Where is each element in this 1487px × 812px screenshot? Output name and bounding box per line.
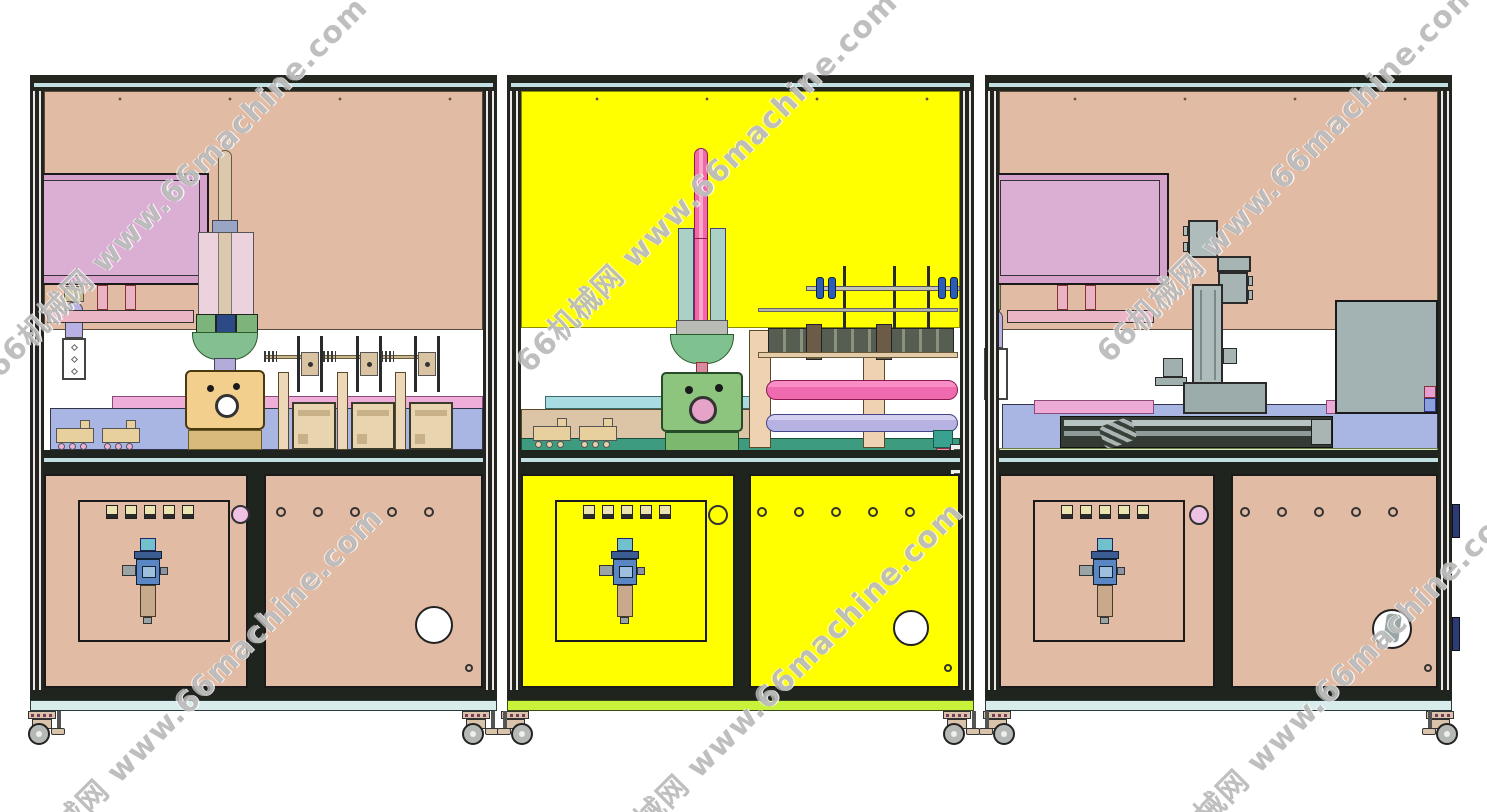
- vent-hole: [1314, 507, 1324, 517]
- robot-bracket-tab: [1248, 290, 1253, 300]
- left-mid-divider: [30, 450, 497, 470]
- terminal-connector: [602, 505, 614, 519]
- middle-press-drum: [670, 334, 734, 364]
- air-filter-regulator: [597, 538, 653, 626]
- valve-body: [56, 428, 94, 443]
- terminal-connector: [1118, 505, 1130, 519]
- monitor-stand-column: [1057, 285, 1068, 310]
- door-hinge: [1452, 504, 1460, 538]
- filter-cap: [1097, 538, 1113, 551]
- caster-wheel: [943, 723, 965, 745]
- leveling-pad: [497, 728, 511, 735]
- left-monitor: [33, 173, 209, 323]
- vent-hole: [868, 507, 878, 517]
- robot-motor: [1163, 358, 1183, 377]
- caster-bolts: [465, 714, 487, 717]
- terminal-connector: [621, 505, 633, 519]
- caster: [1424, 711, 1466, 747]
- vent-hole: [794, 507, 804, 517]
- vent-hole: [424, 507, 434, 517]
- column-groove: [1200, 290, 1202, 380]
- press-block-green: [236, 314, 258, 334]
- right-table-trim: [1034, 400, 1154, 414]
- terminal-connector: [106, 505, 118, 519]
- small-hole: [944, 664, 952, 672]
- right-kick-strip: [985, 700, 1452, 711]
- press-body-rod: [218, 233, 232, 315]
- gearbox-bar: [415, 410, 447, 416]
- press-box-eye: [715, 384, 723, 392]
- spool-flange: [356, 336, 359, 392]
- left-bottom-rail: [30, 690, 497, 700]
- monitor-screen: [1000, 180, 1160, 276]
- valve-foot: [104, 443, 111, 450]
- cable-gland-hole: [415, 606, 453, 644]
- vent-hole: [276, 507, 286, 517]
- gearbox-block: [415, 434, 425, 444]
- leveling-stem: [985, 711, 989, 729]
- press-block-green: [196, 314, 216, 334]
- linear-rail: [1060, 416, 1333, 448]
- valve-foot: [69, 443, 76, 450]
- valve-foot: [58, 443, 65, 450]
- press-box-port: [689, 396, 717, 424]
- leveling-stem: [972, 711, 976, 729]
- filter-knob: [1079, 565, 1093, 576]
- caster-wheel: [511, 723, 533, 745]
- terminal-connector: [182, 505, 194, 519]
- caster-wheel: [993, 723, 1015, 745]
- leveling-pad: [979, 728, 993, 735]
- filter-drain: [143, 617, 152, 624]
- shaft-flange: [816, 277, 824, 299]
- middle-press-rod-lower: [694, 238, 708, 330]
- terminal-connector: [1080, 505, 1092, 519]
- top-bar-stripe: [511, 83, 970, 87]
- left-indicator-button: [231, 505, 250, 524]
- caster-plate: [943, 711, 971, 719]
- shaft-flange: [828, 277, 836, 299]
- terminal-connector: [144, 505, 156, 519]
- panel-screws: [65, 96, 462, 102]
- valve-foot: [115, 443, 122, 450]
- press-box-port: [215, 394, 239, 418]
- feeder-upright: [395, 372, 406, 450]
- valve-body: [579, 426, 617, 441]
- leveling-stem: [503, 711, 507, 729]
- feeder-upright: [337, 372, 348, 450]
- pink-roller: [766, 380, 958, 400]
- left-bay-top-bar: [30, 75, 497, 91]
- air-filter-regulator: [120, 538, 176, 626]
- robot-base: [1183, 382, 1267, 414]
- valve-foot: [546, 441, 553, 448]
- valve-foot: [592, 441, 599, 448]
- terminal-connector: [659, 505, 671, 519]
- caster-bolts: [31, 714, 53, 717]
- vent-hole: [1351, 507, 1361, 517]
- top-bar-stripe: [989, 83, 1448, 87]
- caster: [499, 711, 541, 747]
- cable-gland-hole: [893, 610, 929, 646]
- filter-drain: [1100, 617, 1109, 624]
- leveling-stem: [491, 711, 495, 729]
- press-body: [198, 232, 254, 316]
- robot-carriage-tab: [1183, 242, 1188, 252]
- caster-bolts: [986, 714, 1008, 717]
- right-bottom-rail: [985, 690, 1452, 700]
- middle-indicator-button: [708, 505, 728, 525]
- second-shaft: [758, 308, 958, 312]
- vent-hole: [757, 507, 767, 517]
- shaft-flange: [938, 277, 946, 299]
- terminal-connector: [1099, 505, 1111, 519]
- terminal-connector: [640, 505, 652, 519]
- signal-body: [62, 338, 86, 380]
- filter-bowl: [1097, 585, 1113, 617]
- filter-bracket: [611, 551, 639, 559]
- right-bay-left-column: [985, 75, 999, 700]
- filter-bowl: [140, 585, 156, 617]
- monitor-stand-column: [97, 285, 108, 310]
- robot-carriage-tab: [1183, 226, 1188, 236]
- left-kick-strip: [30, 700, 497, 711]
- divider-stripe: [34, 458, 493, 462]
- feeder-upright: [278, 372, 289, 450]
- wheel-hub: [1001, 731, 1007, 737]
- diamond-mark: [71, 368, 78, 375]
- filter-fitting: [160, 567, 168, 575]
- caster-wheel: [28, 723, 50, 745]
- left-bay-right-column: [483, 75, 497, 700]
- right-bay-top-bar: [985, 75, 1452, 91]
- spool-flange: [297, 336, 300, 392]
- column-groove: [1214, 290, 1216, 380]
- caster: [941, 711, 983, 747]
- caster-bolts: [504, 714, 526, 717]
- filter-bracket: [134, 551, 162, 559]
- robot-side-tab: [1223, 348, 1237, 364]
- caster: [981, 711, 1023, 747]
- terminal-connector: [125, 505, 137, 519]
- filter-body: [1093, 559, 1117, 585]
- wheel-hub: [36, 731, 42, 737]
- feeder-spring: [323, 351, 336, 362]
- filter-gauge: [1099, 566, 1113, 578]
- caster-bolts: [946, 714, 968, 717]
- feeder-gearbox: [409, 402, 453, 450]
- pneumatic-valve: [56, 420, 98, 452]
- divider-stripe: [511, 458, 970, 462]
- wheel-hub: [519, 731, 525, 737]
- filter-body: [136, 559, 160, 585]
- leveling-pad: [1422, 728, 1436, 735]
- roller-bar: [758, 352, 958, 358]
- monitor-stand-column: [125, 285, 136, 310]
- filter-knob: [122, 565, 136, 576]
- terminal-connector: [583, 505, 595, 519]
- caster-wheel: [462, 723, 484, 745]
- middle-cabinet-right-door: [749, 474, 960, 688]
- box-pink-tab: [1424, 386, 1436, 398]
- wheel-hub: [1444, 731, 1450, 737]
- middle-press-rod: [694, 148, 708, 240]
- vent-hole: [1388, 507, 1398, 517]
- spool-hub-center: [308, 362, 313, 367]
- press-box-eye: [685, 386, 693, 394]
- valve-foot: [581, 441, 588, 448]
- valve-body: [102, 428, 140, 443]
- leveling-stem: [57, 711, 61, 729]
- robot-arm: [1217, 256, 1251, 272]
- caster: [460, 711, 502, 747]
- middle-bay-left-column: [507, 75, 521, 700]
- middle-mid-divider: [507, 450, 974, 470]
- filter-cap: [140, 538, 156, 551]
- vent-hole: [905, 507, 915, 517]
- terminal-connector: [163, 505, 175, 519]
- terminal-connector: [1137, 505, 1149, 519]
- middle-press-cylinder: [678, 228, 694, 332]
- rail-end-block: [1311, 419, 1332, 445]
- robot-column: [1192, 284, 1223, 384]
- press-box-eye: [207, 385, 214, 392]
- filter-bracket: [1091, 551, 1119, 559]
- small-hole: [1424, 664, 1432, 672]
- box-blue-tab: [1424, 398, 1436, 412]
- vent-hole: [1240, 507, 1250, 517]
- monitor-stand-base: [1007, 310, 1154, 323]
- pneumatic-valve: [579, 418, 621, 450]
- vent-hole: [313, 507, 323, 517]
- left-cabinet-right-door: [264, 474, 483, 688]
- spool-flange: [414, 336, 417, 392]
- right-indicator-button: [1189, 505, 1209, 525]
- valve-foot: [535, 441, 542, 448]
- monitor-screen: [40, 180, 200, 276]
- filter-fitting: [1117, 567, 1125, 575]
- middle-press-box: [661, 372, 743, 432]
- spool-flange: [437, 336, 440, 392]
- leveling-stem: [1428, 711, 1432, 729]
- valve-foot: [557, 441, 564, 448]
- diamond-mark: [71, 356, 78, 363]
- fan-hole: [1372, 609, 1412, 649]
- middle-bay-top-bar: [507, 75, 974, 91]
- spool-feeder: [381, 336, 453, 450]
- panel-screws: [542, 96, 939, 102]
- lavender-roller: [766, 414, 958, 432]
- pneumatic-valve: [533, 418, 575, 450]
- top-bar-stripe: [34, 83, 493, 87]
- filter-bowl: [617, 585, 633, 617]
- leveling-pad: [51, 728, 65, 735]
- feeder-spring: [381, 351, 394, 362]
- caster-plate: [28, 711, 56, 719]
- caster-wheel: [1436, 723, 1458, 745]
- gearbox-block: [357, 434, 367, 444]
- press-drum: [192, 332, 258, 360]
- filter-drain: [620, 617, 629, 624]
- filter-gauge: [142, 566, 156, 578]
- right-bay-right-column: [1438, 75, 1452, 700]
- caster: [26, 711, 68, 747]
- right-cabinet-right-door: [1231, 474, 1438, 688]
- fan-blade: [1383, 613, 1402, 643]
- air-filter-regulator: [1077, 538, 1133, 626]
- terminal-connector: [1061, 505, 1073, 519]
- shaft-flange: [950, 277, 958, 299]
- small-hole: [465, 664, 473, 672]
- door-hinge: [1452, 617, 1460, 651]
- valve-foot: [603, 441, 610, 448]
- robot-bracket-tab: [1248, 276, 1253, 286]
- gearbox-block: [298, 434, 308, 444]
- robot-carriage: [1188, 220, 1218, 258]
- caster-bolts: [1429, 714, 1451, 717]
- middle-press-cylinder: [710, 228, 726, 332]
- valve-foot: [80, 443, 87, 450]
- vent-hole: [387, 507, 397, 517]
- panel-screws: [1020, 96, 1417, 102]
- electrical-box: [1335, 300, 1438, 414]
- valve-body: [533, 426, 571, 441]
- filter-fitting: [637, 567, 645, 575]
- press-pedestal: [188, 430, 262, 450]
- right-monitor: [993, 173, 1169, 323]
- spool-hub-center: [425, 362, 430, 367]
- spool-hub-center: [367, 362, 372, 367]
- machine-drawing: 66机械网 www.66machine.com 66机械网 www.66mach…: [0, 0, 1487, 812]
- vent-hole: [350, 507, 360, 517]
- right-mid-divider: [985, 450, 1452, 470]
- filter-knob: [599, 565, 613, 576]
- divider-stripe: [989, 458, 1448, 462]
- diamond-mark: [71, 344, 78, 351]
- vent-hole: [1277, 507, 1287, 517]
- valve-foot: [126, 443, 133, 450]
- filter-cap: [617, 538, 633, 551]
- wheel-hub: [951, 731, 957, 737]
- left-bay-left-column: [30, 75, 44, 700]
- middle-bottom-rail: [507, 690, 974, 700]
- middle-bay-right-column: [960, 75, 974, 700]
- monitor-stand-column: [1085, 285, 1096, 310]
- leveling-pad: [966, 728, 980, 735]
- filter-gauge: [619, 566, 633, 578]
- monitor-stand-base: [47, 310, 194, 323]
- press-block-navy: [216, 314, 236, 334]
- filter-body: [613, 559, 637, 585]
- press-box-eye: [233, 383, 240, 390]
- press-box: [185, 370, 265, 430]
- pneumatic-valve: [102, 420, 144, 452]
- middle-kick-strip: [507, 700, 974, 711]
- wheel-hub: [470, 731, 476, 737]
- feeder-spring: [264, 351, 277, 362]
- vent-hole: [831, 507, 841, 517]
- caster-plate: [462, 711, 490, 719]
